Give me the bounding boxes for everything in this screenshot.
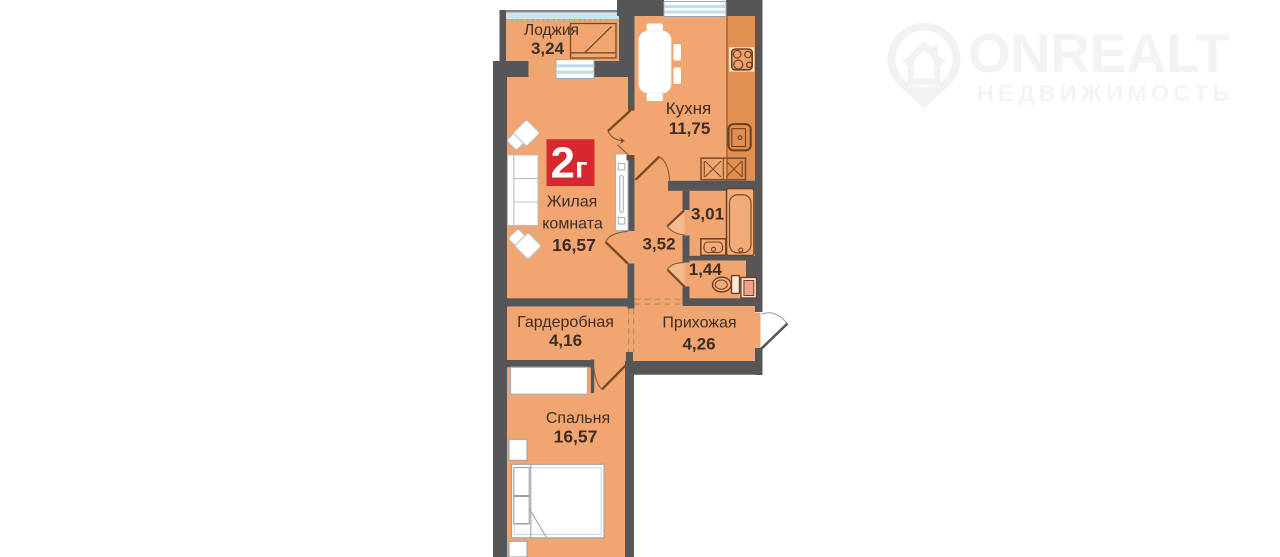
svg-text:комната: комната (542, 216, 603, 233)
svg-text:16,57: 16,57 (552, 235, 596, 255)
svg-text:3,24: 3,24 (531, 39, 565, 58)
svg-text:16,57: 16,57 (554, 427, 598, 447)
svg-text:3,01: 3,01 (691, 205, 724, 224)
svg-text:Гардеробная: Гардеробная (517, 314, 614, 331)
svg-text:Спальня: Спальня (546, 410, 610, 427)
svg-text:11,75: 11,75 (669, 119, 711, 138)
svg-text:Кухня: Кухня (666, 99, 712, 118)
svg-text:Жилая: Жилая (547, 194, 598, 211)
svg-text:ONREALT: ONREALT (968, 22, 1229, 84)
svg-text:Лоджия: Лоджия (524, 22, 579, 39)
svg-text:4,26: 4,26 (682, 335, 715, 354)
svg-text:1,44: 1,44 (689, 260, 723, 279)
svg-text:4,16: 4,16 (549, 331, 582, 350)
svg-text:Прихожая: Прихожая (662, 315, 736, 332)
svg-text:3,52: 3,52 (642, 235, 675, 254)
